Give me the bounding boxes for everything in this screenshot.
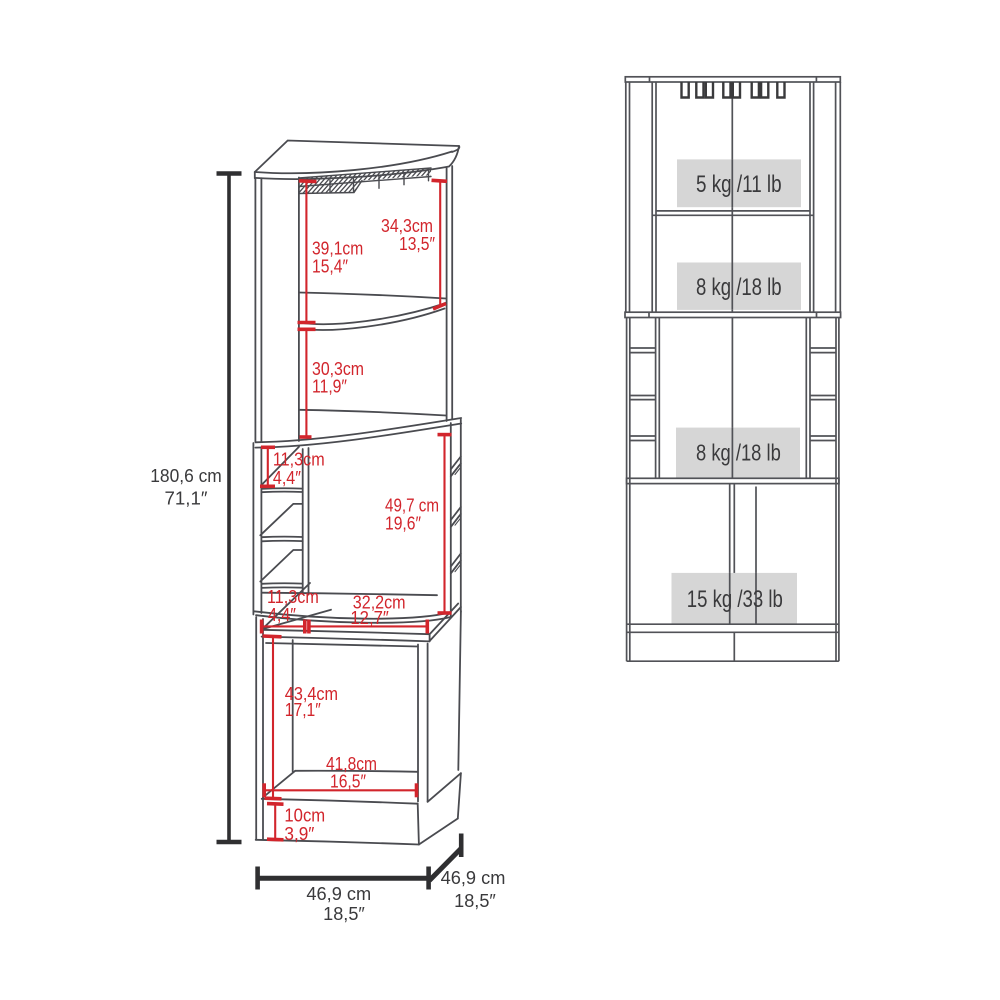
svg-text:8 kg /18 lb: 8 kg /18 lb xyxy=(696,440,781,466)
svg-text:18,5″: 18,5″ xyxy=(454,891,496,911)
svg-text:18,5″: 18,5″ xyxy=(323,904,365,924)
svg-text:11,3cm: 11,3cm xyxy=(267,587,319,607)
svg-text:10cm: 10cm xyxy=(284,806,325,826)
svg-text:3,9″: 3,9″ xyxy=(284,824,315,844)
svg-text:13,5″: 13,5″ xyxy=(399,234,436,254)
svg-text:71,1″: 71,1″ xyxy=(165,489,209,509)
svg-text:17,1″: 17,1″ xyxy=(285,700,322,720)
svg-text:46,9 cm: 46,9 cm xyxy=(306,884,371,904)
svg-text:11,9″: 11,9″ xyxy=(312,377,348,397)
svg-text:39,1cm: 39,1cm xyxy=(312,239,363,259)
svg-text:8 kg /18 lb: 8 kg /18 lb xyxy=(696,274,782,301)
svg-text:4,4″: 4,4″ xyxy=(268,605,297,625)
svg-text:19,6″: 19,6″ xyxy=(385,514,422,534)
svg-text:4,4″: 4,4″ xyxy=(273,468,302,488)
svg-text:15,4″: 15,4″ xyxy=(312,257,349,277)
svg-text:49,7 cm: 49,7 cm xyxy=(385,496,439,516)
svg-text:46,9 cm: 46,9 cm xyxy=(441,868,506,888)
svg-text:16,5″: 16,5″ xyxy=(330,772,367,792)
svg-text:5 kg /11 lb: 5 kg /11 lb xyxy=(696,171,782,198)
svg-text:34,3cm: 34,3cm xyxy=(381,216,433,236)
svg-text:11,3cm: 11,3cm xyxy=(273,450,325,470)
svg-text:12,7″: 12,7″ xyxy=(350,608,389,628)
svg-text:180,6 cm: 180,6 cm xyxy=(150,466,222,486)
svg-text:15 kg /33 lb: 15 kg /33 lb xyxy=(687,586,783,613)
